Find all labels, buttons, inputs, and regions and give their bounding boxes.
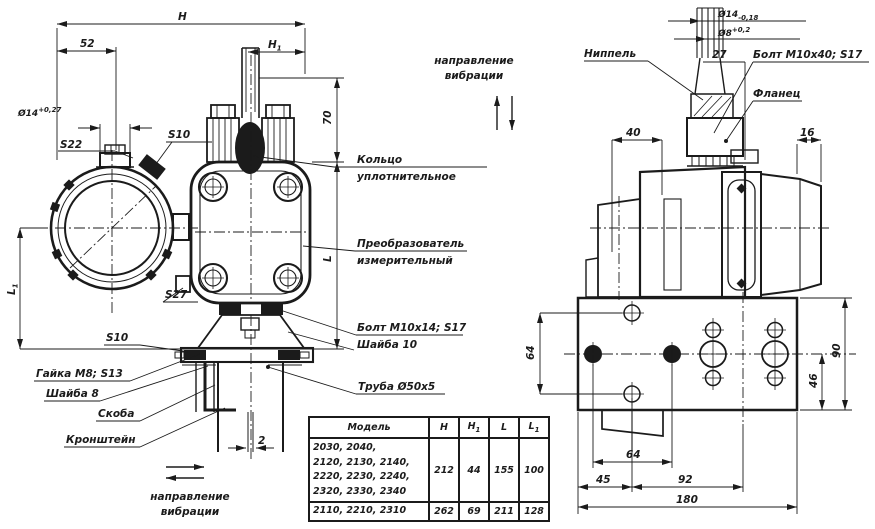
dim-70: 70	[322, 110, 334, 125]
dim-dia8: Ø8+0,2	[717, 26, 750, 39]
header-L1: L1	[519, 417, 549, 438]
nipple	[691, 8, 733, 118]
dim-L1: L1	[6, 283, 20, 295]
header-L: L	[489, 417, 519, 438]
flange-bolts	[199, 173, 302, 292]
label-truba: Труба Ø50х5	[358, 381, 435, 393]
cell-L1-1: 100	[519, 438, 549, 502]
dim-180: 180	[676, 494, 698, 506]
header-model: Модель	[309, 417, 429, 438]
cell-models-2: 2110, 2210, 2310	[309, 502, 429, 521]
dim-27: 27	[712, 49, 727, 61]
flange-block	[687, 118, 758, 166]
callout-texts: Ниппель Болт М10х40; S17 Фланец Кольцо у…	[36, 48, 863, 446]
table-row: 2110, 2210, 2310 262 69 211 128	[309, 502, 549, 521]
dim-64-horizontal: 64	[626, 449, 641, 461]
label-s10-top: S10	[168, 129, 190, 141]
dim-52: 52	[80, 38, 95, 50]
dim-2: 2	[258, 435, 265, 447]
side-view-transducer	[175, 48, 313, 462]
label-s22: S22	[60, 139, 82, 151]
label-preobr-2: измерительный	[357, 255, 453, 267]
dim-dia14-left: Ø14+0,27	[17, 106, 61, 119]
cell-H-2: 262	[429, 502, 459, 521]
dim-16: 16	[800, 127, 815, 139]
dim-92: 92	[678, 474, 693, 486]
spec-table: Модель Н Н1 L L1 2030, 2040, 2120, 2130,…	[308, 416, 550, 522]
vibration-note-bottom: направление вибрации	[150, 467, 229, 518]
spec-table-header-row: Модель Н Н1 L L1	[309, 417, 549, 438]
label-kolco-1: Кольцо	[357, 154, 402, 166]
dim-L: L	[322, 255, 334, 262]
cell-H1-1: 44	[459, 438, 489, 502]
vibration-note-top: направление вибрации	[434, 55, 513, 130]
base-plate	[564, 292, 856, 450]
label-bolt-m10x14: Болт М10х14; S17	[357, 322, 467, 334]
transducer-body-profile	[586, 167, 832, 300]
vibration-arrows-vertical	[497, 96, 512, 130]
vibration-top-line2: вибрации	[445, 70, 504, 82]
vibration-bottom-line1: направление	[150, 491, 229, 503]
header-H1: Н1	[459, 417, 489, 438]
vibration-arrows-horizontal	[166, 467, 204, 478]
label-bolt-m10x40: Болт М10х40; S17	[753, 49, 863, 61]
stem	[235, 48, 265, 174]
technical-drawing-page: Н 52 Н1 Ø14+0,27 70 L L1 2 Ø14-0,18 Ø8+0…	[0, 0, 875, 529]
dim-H: Н	[178, 11, 187, 23]
dim-64-vertical: 64	[525, 345, 537, 360]
label-shayba10: Шайба 10	[357, 339, 417, 351]
vibration-top-line1: направление	[434, 55, 513, 67]
dim-45: 45	[595, 474, 611, 486]
cell-L-2: 211	[489, 502, 519, 521]
plate-holes	[584, 301, 790, 406]
header-H: Н	[429, 417, 459, 438]
label-kolco-2: уплотнительное	[357, 171, 456, 183]
label-shayba8: Шайба 8	[46, 388, 99, 400]
label-kronshteyn: Кронштейн	[66, 434, 136, 446]
cell-L-1: 155	[489, 438, 519, 502]
cell-L1-2: 128	[519, 502, 549, 521]
dim-90: 90	[831, 343, 843, 358]
dim-H1: Н1	[268, 39, 282, 53]
cell-H1-2: 69	[459, 502, 489, 521]
label-s27: S27	[165, 289, 188, 301]
cell-H-1: 212	[429, 438, 459, 502]
vibration-bottom-line2: вибрации	[161, 506, 220, 518]
cell-models-1: 2030, 2040, 2120, 2130, 2140, 2220, 2230…	[309, 438, 429, 502]
label-skoba: Скоба	[98, 408, 134, 420]
label-s10-bottom: S10	[106, 332, 128, 344]
dim-40: 40	[625, 127, 641, 139]
label-preobr-1: Преобразователь	[357, 238, 465, 250]
label-gayka: Гайка М8; S13	[36, 368, 123, 380]
dim-46: 46	[808, 373, 820, 389]
label-nippel: Ниппель	[584, 48, 636, 60]
table-row: 2030, 2040, 2120, 2130, 2140, 2220, 2230…	[309, 438, 549, 502]
label-flanec: Фланец	[753, 88, 801, 100]
